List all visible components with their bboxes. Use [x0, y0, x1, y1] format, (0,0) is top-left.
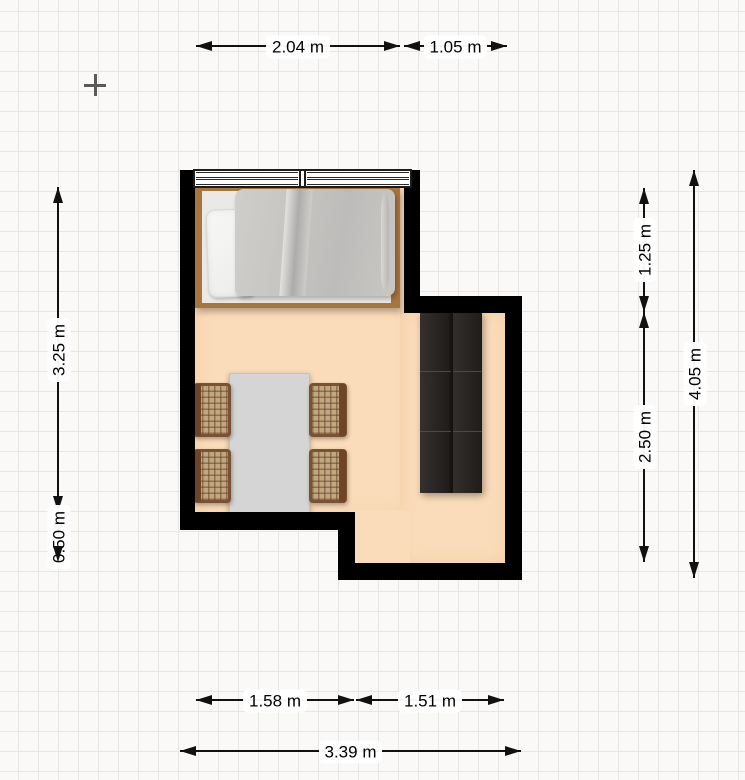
wall-step-bottom-left[interactable] [180, 512, 355, 530]
wall-upper-right[interactable] [404, 170, 420, 313]
blanket-fold [381, 193, 389, 291]
window-pane-right [307, 172, 409, 185]
blanket-fold [279, 189, 312, 296]
dimension-label[interactable]: 4.05 m [684, 342, 707, 406]
dimension-bottom-total[interactable]: 3.39 m [180, 750, 521, 752]
dimension-label[interactable]: 1.51 m [398, 690, 462, 713]
chair-top-right[interactable] [309, 383, 347, 437]
window-mullion [299, 171, 306, 186]
chair-backrest [339, 384, 346, 436]
window[interactable] [193, 169, 412, 188]
dimension-label[interactable]: 2.04 m [266, 36, 330, 59]
dimension-right-total[interactable]: 4.05 m [693, 170, 695, 578]
wardrobe-door-seam [451, 312, 453, 493]
dimension-label[interactable]: 3.39 m [319, 741, 383, 764]
chair-top-left[interactable] [193, 383, 231, 437]
crosshair-icon [84, 74, 106, 96]
dimension-label[interactable]: 1.05 m [424, 36, 488, 59]
dimension-label[interactable]: 1.58 m [243, 690, 307, 713]
wall-step-left-vertical[interactable] [338, 512, 355, 580]
chair-bottom-left[interactable] [193, 449, 231, 503]
chair-bottom-right[interactable] [309, 449, 347, 503]
window-pane-left [196, 172, 298, 185]
wardrobe[interactable] [420, 312, 482, 493]
dimension-left-upper[interactable]: 3.25 m [57, 187, 59, 512]
wall-right[interactable] [505, 296, 522, 580]
dimension-right-lower-inset[interactable]: 2.50 m [643, 312, 645, 562]
chair-backrest [194, 384, 201, 436]
bed[interactable] [195, 188, 400, 308]
wall-bottom[interactable] [338, 563, 522, 580]
chair-backrest [194, 450, 201, 502]
blanket [235, 189, 395, 296]
dimension-label[interactable]: 1.25 m [634, 218, 657, 282]
dimension-label[interactable]: 2.50 m [634, 405, 657, 469]
room-floor[interactable] [350, 510, 410, 565]
dimension-label[interactable]: 3.25 m [48, 318, 71, 382]
dimension-label[interactable]: 0.50 m [48, 505, 71, 569]
chair-backrest [339, 450, 346, 502]
dimension-top-right-inset[interactable]: 1.05 m [404, 45, 507, 47]
dining-table[interactable] [229, 373, 310, 513]
dimension-left-lower[interactable]: 0.50 m [57, 512, 59, 562]
wall-left[interactable] [180, 170, 195, 530]
plan-canvas[interactable]: 2.04 m 1.05 m 3.25 m 0.50 m 1.25 m 2.50 … [0, 0, 745, 780]
dimension-bottom-right-inner[interactable]: 1.51 m [356, 699, 504, 701]
dimension-right-upper-inset[interactable]: 1.25 m [643, 188, 645, 312]
dimension-window-width[interactable]: 2.04 m [196, 45, 400, 47]
dimension-bottom-left-inner[interactable]: 1.58 m [196, 699, 354, 701]
